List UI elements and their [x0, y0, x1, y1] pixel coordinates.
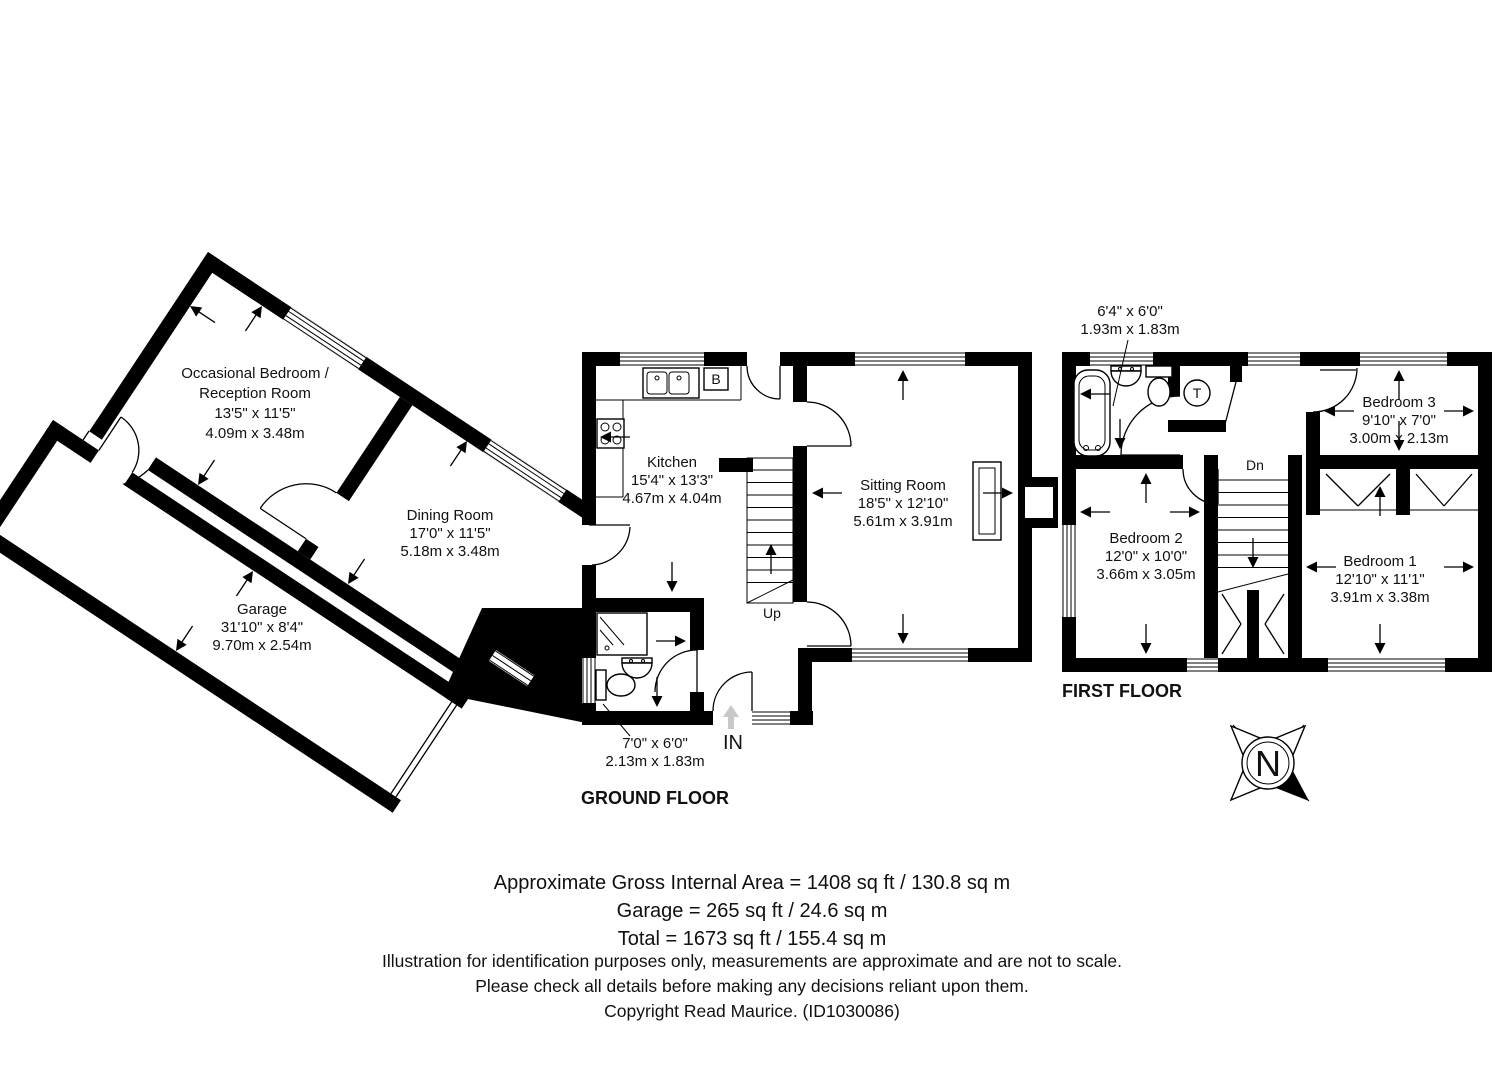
- bathroom-toilet: [1146, 366, 1172, 406]
- footer-garage-line: Garage = 265 sq ft / 24.6 sq m: [617, 900, 888, 922]
- window-bedroom2-bottom: [1187, 658, 1218, 672]
- compass-north-label: N: [1255, 743, 1281, 784]
- svg-text:2.13m x 1.83m: 2.13m x 1.83m: [605, 753, 704, 770]
- shower-cubicle: [597, 613, 647, 655]
- svg-text:3.91m x 3.38m: 3.91m x 3.38m: [1330, 589, 1429, 606]
- window-bedroom1-bottom: [1328, 658, 1445, 672]
- svg-text:Bedroom 3: Bedroom 3: [1362, 394, 1435, 411]
- window-sitting-room-top: [855, 352, 965, 366]
- svg-text:31'10" x 8'4": 31'10" x 8'4": [221, 619, 303, 636]
- svg-text:9'10" x 7'0": 9'10" x 7'0": [1362, 412, 1436, 429]
- bath: [1074, 370, 1110, 456]
- svg-text:7'0" x 6'0": 7'0" x 6'0": [622, 735, 688, 752]
- svg-text:3.00m x 2.13m: 3.00m x 2.13m: [1349, 430, 1448, 447]
- dining-room-label: Dining Room 17'0" x 11'5" 5.18m x 3.48m: [400, 507, 499, 560]
- boiler-label: B: [711, 371, 720, 387]
- tank-label: T: [1193, 385, 1202, 401]
- window-bathroom: [1090, 352, 1153, 366]
- svg-text:6'4" x 6'0": 6'4" x 6'0": [1097, 303, 1163, 320]
- window-kitchen: [620, 352, 704, 366]
- svg-text:1.93m x 1.83m: 1.93m x 1.83m: [1080, 321, 1179, 338]
- ground-floor-block: [582, 352, 1058, 729]
- footer-area-line: Approximate Gross Internal Area = 1408 s…: [494, 872, 1010, 894]
- footer-total-line: Total = 1673 sq ft / 155.4 sq m: [618, 928, 887, 950]
- svg-text:15'4" x 13'3": 15'4" x 13'3": [631, 472, 713, 489]
- bedroom2-label: Bedroom 2 12'0" x 10'0" 3.66m x 3.05m: [1096, 530, 1195, 583]
- svg-text:4.09m x 3.48m: 4.09m x 3.48m: [205, 425, 304, 442]
- bedroom1-label: Bedroom 1 12'10" x 11'1" 3.91m x 3.38m: [1330, 553, 1429, 606]
- window-hall-bottom: [752, 711, 790, 725]
- footer-copyright: Copyright Read Maurice. (ID1030086): [604, 1001, 900, 1021]
- svg-text:13'5" x 11'5": 13'5" x 11'5": [214, 405, 295, 422]
- entrance-in-label: IN: [723, 732, 743, 754]
- fireplace-surround: [973, 462, 1001, 540]
- shower-room-label: 7'0" x 6'0" 2.13m x 1.83m: [605, 735, 704, 770]
- window-bedroom2-side: [1062, 525, 1076, 617]
- window-bedroom3: [1360, 352, 1447, 366]
- svg-text:Kitchen: Kitchen: [647, 454, 697, 471]
- svg-text:Sitting Room: Sitting Room: [860, 477, 946, 494]
- window-sitting-room-bottom: [852, 648, 968, 662]
- stairs-dn-label: Dn: [1246, 457, 1264, 473]
- svg-text:Bedroom 2: Bedroom 2: [1109, 530, 1182, 547]
- svg-text:Occasional Bedroom /: Occasional Bedroom /: [181, 365, 329, 382]
- floorplan-canvas: N Occasional Bedroom / Reception Room 13…: [0, 0, 1495, 1080]
- svg-text:Reception Room: Reception Room: [199, 385, 311, 402]
- stairs-up-label: Up: [763, 605, 781, 621]
- bathroom-label: 6'4" x 6'0" 1.93m x 1.83m: [1080, 303, 1179, 338]
- floorplan-page: N Occasional Bedroom / Reception Room 13…: [0, 0, 1495, 1080]
- svg-text:18'5" x 12'10": 18'5" x 12'10": [858, 495, 949, 512]
- svg-text:4.67m x 4.04m: 4.67m x 4.04m: [622, 490, 721, 507]
- svg-text:5.61m x 3.91m: 5.61m x 3.91m: [853, 513, 952, 530]
- svg-text:12'10" x 11'1": 12'10" x 11'1": [1335, 571, 1425, 588]
- footer-disclaimer-2: Please check all details before making a…: [475, 976, 1029, 996]
- kitchen-sink: [643, 368, 699, 398]
- footer-text: Approximate Gross Internal Area = 1408 s…: [382, 872, 1122, 1021]
- window-landing: [1248, 352, 1300, 366]
- svg-text:17'0" x 11'5": 17'0" x 11'5": [409, 525, 490, 542]
- svg-text:Garage: Garage: [237, 601, 287, 618]
- svg-text:5.18m x 3.48m: 5.18m x 3.48m: [400, 543, 499, 560]
- footer-disclaimer-1: Illustration for identification purposes…: [382, 951, 1122, 971]
- first-floor-title: FIRST FLOOR: [1062, 681, 1182, 701]
- ground-floor-title: GROUND FLOOR: [581, 788, 729, 808]
- bedroom3-label: Bedroom 3 9'10" x 7'0" 3.00m x 2.13m: [1349, 394, 1448, 447]
- svg-text:9.70m x 2.54m: 9.70m x 2.54m: [212, 637, 311, 654]
- compass-rose: N: [1231, 725, 1309, 801]
- svg-text:Dining Room: Dining Room: [407, 507, 494, 524]
- svg-text:3.66m x 3.05m: 3.66m x 3.05m: [1096, 566, 1195, 583]
- sitting-room-label: Sitting Room 18'5" x 12'10" 5.61m x 3.91…: [853, 477, 952, 530]
- window-shower-room: [582, 658, 596, 703]
- svg-text:Bedroom 1: Bedroom 1: [1343, 553, 1416, 570]
- svg-text:12'0" x 10'0": 12'0" x 10'0": [1105, 548, 1187, 565]
